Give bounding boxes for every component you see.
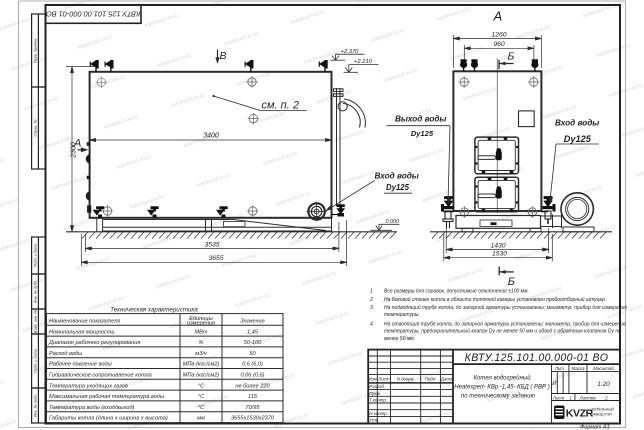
svg-text:На подводящий трубе котла, до: На подводящий трубе котла, до запорной а…	[384, 304, 627, 311]
svg-text:3400: 3400	[203, 133, 219, 140]
svg-text:Подп. и дата: Подп. и дата	[34, 244, 38, 268]
svg-text:температуры, предохранительный: температуры, предохранительный клапан Dу…	[384, 328, 621, 335]
svg-text:Масштаб: Масштаб	[593, 366, 614, 371]
svg-text:3655: 3655	[208, 255, 223, 262]
svg-text:960: 960	[493, 41, 505, 48]
svg-text:Максимальная рабочая температу: Максимальная рабочая температура воды	[49, 394, 164, 400]
svg-text:Лит.: Лит.	[554, 366, 565, 371]
svg-text:1530: 1530	[492, 251, 507, 258]
svg-text:Температура уходящих газов: Температура уходящих газов	[49, 383, 128, 389]
svg-text:1:20: 1:20	[597, 381, 610, 388]
svg-text:А: А	[73, 138, 81, 150]
svg-text:На боковой стенке котла в обла: На боковой стенке котла в области топочн…	[384, 296, 605, 303]
svg-text:0.000: 0.000	[386, 219, 400, 225]
svg-text:мм: мм	[197, 416, 205, 422]
svg-text:Габариты котла (длина х ширина: Габариты котла (длина х ширина х высота)	[49, 416, 168, 422]
svg-text:Инв. № дубл.: Инв. № дубл.	[34, 280, 38, 303]
svg-text:МВт: МВт	[194, 329, 207, 335]
svg-text:%: %	[199, 340, 204, 346]
svg-text:Изм: Изм	[369, 377, 377, 382]
svg-text:1260: 1260	[491, 31, 506, 38]
svg-text:менее 50 мм.: менее 50 мм.	[384, 336, 415, 342]
svg-text:А: А	[493, 9, 503, 24]
svg-text:Подп.: Подп.	[425, 377, 437, 382]
svg-text:Вход воды: Вход воды	[375, 172, 419, 181]
svg-text:Dy125: Dy125	[386, 183, 410, 192]
svg-text:Heatexpert- КВр -1,45- КБД ( Р: Heatexpert- КВр -1,45- КБД ( РВР )	[454, 384, 549, 390]
svg-text:50: 50	[249, 351, 256, 357]
svg-text:ЗАВОД РЭП: ЗАВОД РЭП	[592, 413, 613, 417]
svg-text:Утв.: Утв.	[369, 418, 379, 423]
svg-text:Котел водогрейный: Котел водогрейный	[473, 374, 531, 381]
svg-text:В: В	[220, 50, 227, 62]
svg-text:N докум.: N докум.	[397, 377, 415, 382]
svg-text:Инв. № подл.: Инв. № подл.	[34, 394, 38, 418]
svg-text:2: 2	[369, 297, 373, 303]
svg-text:На отводящий трубе котла, до з: На отводящий трубе котла, до запорной ар…	[384, 320, 626, 327]
svg-text:3: 3	[370, 305, 373, 311]
svg-text:Dy125: Dy125	[411, 129, 434, 138]
svg-text:Лист: Лист	[552, 395, 565, 400]
svg-text:70/95: 70/95	[246, 405, 261, 411]
svg-text:Выход воды: Выход воды	[395, 115, 446, 124]
svg-text:Н.контр.: Н.контр.	[369, 411, 388, 416]
svg-text:+2.210: +2.210	[354, 59, 373, 65]
svg-text:3655х1530х2370: 3655х1530х2370	[231, 416, 275, 422]
svg-text:Пров.: Пров.	[369, 391, 381, 396]
svg-text:м3/ч: м3/ч	[195, 351, 206, 357]
svg-text:измерения: измерения	[187, 321, 215, 327]
svg-text:4: 4	[370, 321, 373, 327]
svg-text:Т.контр.: Т.контр.	[369, 398, 387, 403]
svg-text:115: 115	[248, 394, 258, 400]
svg-text:3535: 3535	[204, 241, 219, 248]
svg-text:Лист: Лист	[377, 377, 390, 382]
svg-text:Наименование показателя: Наименование показателя	[49, 319, 120, 325]
svg-text:+2.370: +2.370	[341, 49, 360, 55]
svg-text:1430: 1430	[490, 242, 505, 249]
svg-text:Подп. и дата: Подп. и дата	[34, 349, 38, 373]
svg-text:2: 2	[604, 395, 608, 400]
svg-text:Гидравлическое сопротивление к: Гидравлическое сопротивление котла	[49, 373, 152, 379]
svg-text:Перв. примен.: Перв. примен.	[34, 38, 38, 63]
svg-text:°С: °С	[198, 405, 205, 411]
svg-text:см. п. 2: см. п. 2	[262, 100, 299, 112]
svg-text:°С: °С	[198, 394, 205, 400]
svg-text:МПа (кгс/см2): МПа (кгс/см2)	[183, 373, 220, 379]
svg-text:КОТЕЛЬНЫЙ: КОТЕЛЬНЫЙ	[592, 408, 615, 412]
svg-text:Взам. инв. №: Взам. инв. №	[34, 310, 38, 333]
svg-text:КВТУ.125.101.00.000-01 ВО: КВТУ.125.101.00.000-01 ВО	[465, 352, 609, 364]
svg-text:температуры.: температуры.	[384, 312, 420, 318]
svg-text:Листов: Листов	[579, 395, 597, 400]
svg-text:Б: Б	[508, 276, 515, 288]
svg-text:Температура воды (вход/выход): Температура воды (вход/выход)	[49, 405, 135, 411]
svg-text:Расход воды: Расход воды	[49, 351, 82, 357]
svg-text:Значение: Значение	[240, 319, 265, 325]
svg-text:°С: °С	[198, 383, 205, 389]
svg-text:МПа (кгс/см2): МПа (кгс/см2)	[183, 362, 220, 368]
svg-text:KVZR: KVZR	[566, 408, 594, 420]
svg-text:И: И	[552, 381, 557, 387]
svg-text:1: 1	[370, 289, 373, 295]
svg-text:Диапазон рабочего регулировани: Диапазон рабочего регулирования	[48, 340, 140, 346]
svg-text:Все размеры для справок, допус: Все размеры для справок, допустимые откл…	[384, 289, 529, 295]
svg-text:Масса: Масса	[572, 366, 586, 371]
svg-text:Вход воды: Вход воды	[555, 119, 599, 128]
svg-text:Dy125: Dy125	[564, 134, 592, 144]
svg-text:1,45: 1,45	[247, 329, 259, 335]
svg-text:КВТУ.125.101.00.000-01 ВО: КВТУ.125.101.00.000-01 ВО	[46, 10, 140, 19]
svg-text:Техническая характеристика: Техническая характеристика	[110, 307, 198, 314]
svg-text:0,6 (6,0): 0,6 (6,0)	[242, 362, 263, 368]
svg-text:Справ. №: Справ. №	[34, 119, 38, 136]
svg-text:Разраб.: Разраб.	[369, 384, 385, 389]
svg-text:не более 220: не более 220	[235, 383, 270, 389]
svg-text:по техническому заданию: по техническому заданию	[461, 393, 536, 399]
svg-text:50-100: 50-100	[244, 340, 262, 346]
svg-text:Б: Б	[508, 51, 515, 63]
svg-text:Номинальная мощность: Номинальная мощность	[49, 329, 114, 335]
svg-text:Формат А3: Формат А3	[580, 424, 610, 430]
svg-text:Рабочее давление воды: Рабочее давление воды	[49, 362, 112, 368]
svg-text:Дата: Дата	[440, 377, 453, 382]
svg-text:0,06 (0,6): 0,06 (0,6)	[241, 373, 265, 379]
